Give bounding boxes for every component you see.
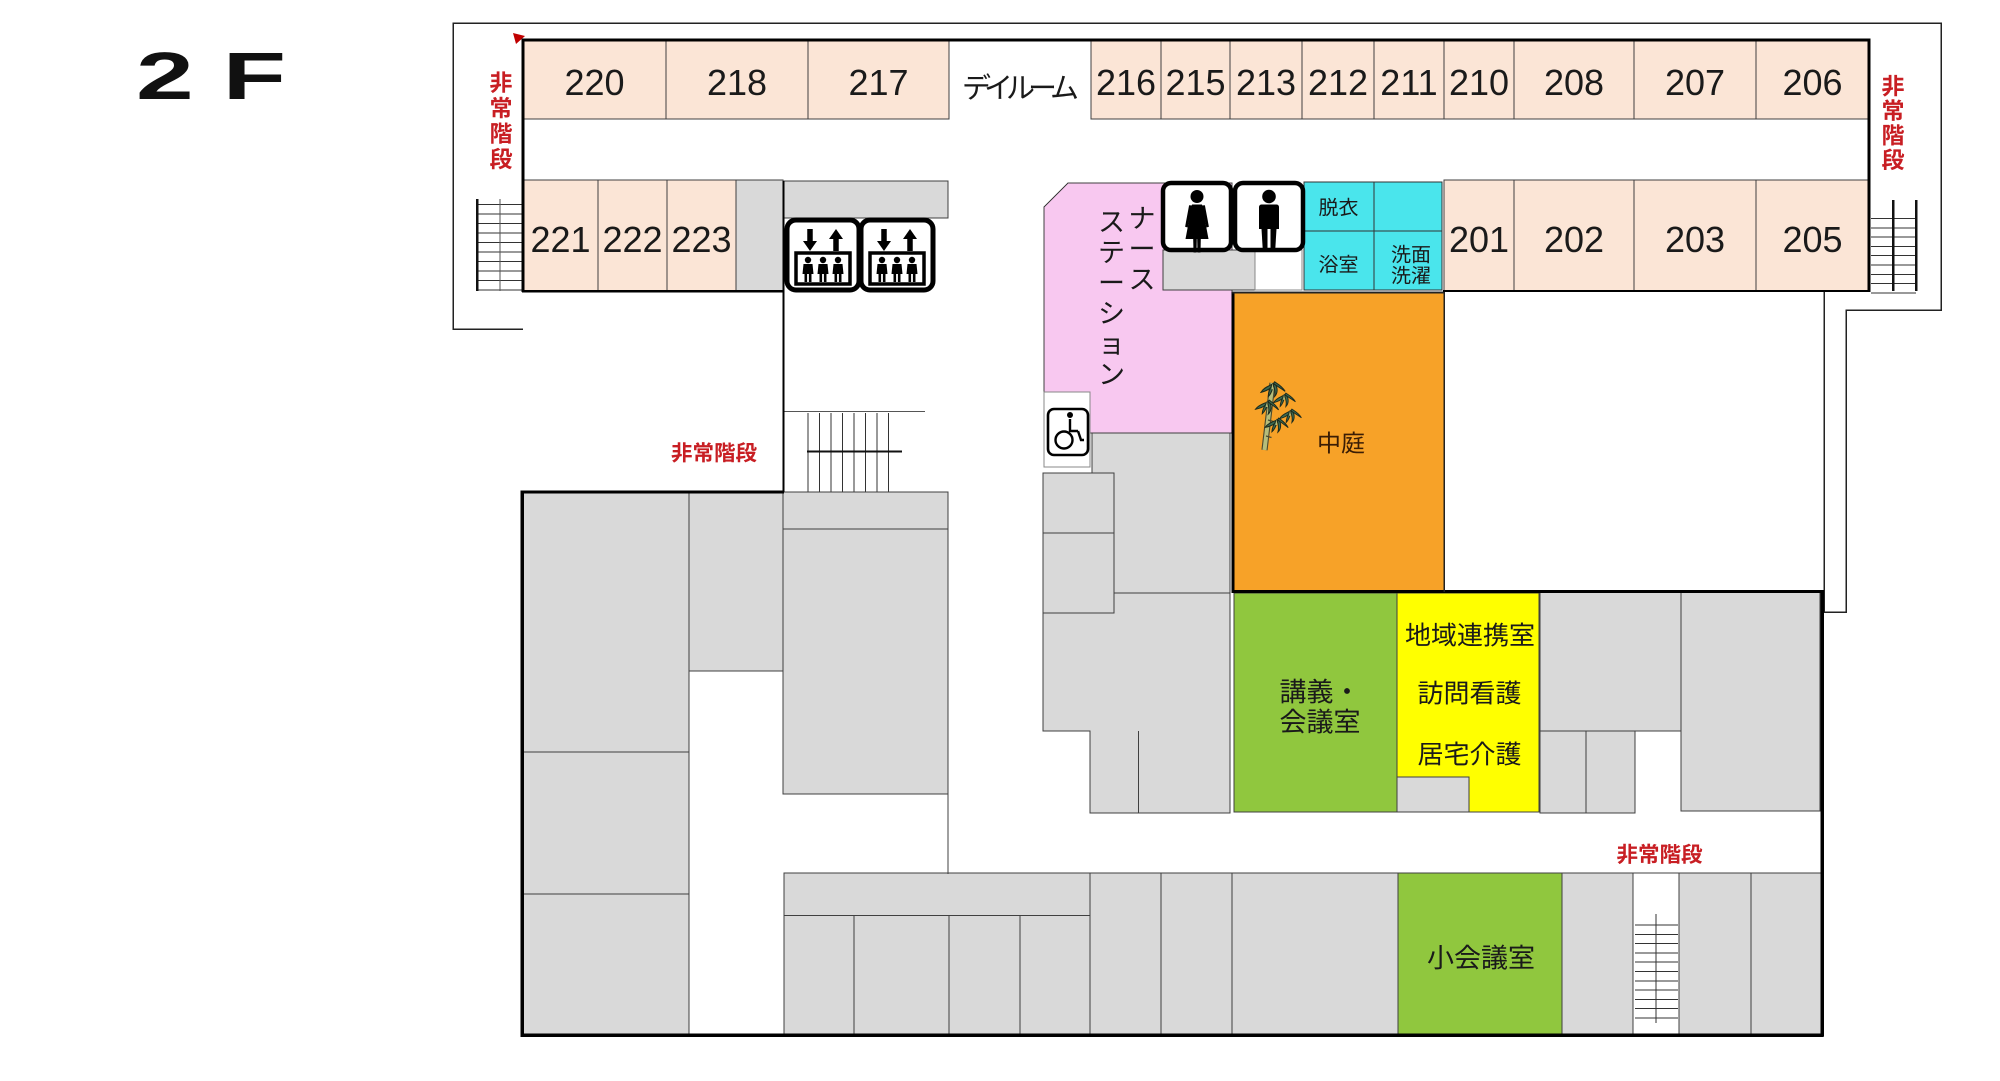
svg-text:221: 221 bbox=[530, 219, 590, 260]
svg-text:211: 211 bbox=[1380, 62, 1437, 103]
svg-text:222: 222 bbox=[602, 219, 662, 260]
svg-text:2 F: 2 F bbox=[136, 39, 286, 114]
svg-text:212: 212 bbox=[1308, 62, 1368, 103]
svg-text:218: 218 bbox=[707, 62, 767, 103]
svg-text:213: 213 bbox=[1236, 62, 1296, 103]
svg-text:207: 207 bbox=[1665, 62, 1725, 103]
svg-text:201: 201 bbox=[1449, 219, 1509, 260]
svg-text:210: 210 bbox=[1449, 62, 1509, 103]
svg-text:202: 202 bbox=[1544, 219, 1604, 260]
svg-text:223: 223 bbox=[671, 219, 731, 260]
svg-text:215: 215 bbox=[1165, 62, 1225, 103]
svg-text:205: 205 bbox=[1782, 219, 1842, 260]
svg-text:208: 208 bbox=[1544, 62, 1604, 103]
svg-text:206: 206 bbox=[1782, 62, 1842, 103]
svg-text:217: 217 bbox=[848, 62, 908, 103]
svg-text:203: 203 bbox=[1665, 219, 1725, 260]
svg-text:220: 220 bbox=[564, 62, 624, 103]
svg-text:216: 216 bbox=[1096, 62, 1156, 103]
